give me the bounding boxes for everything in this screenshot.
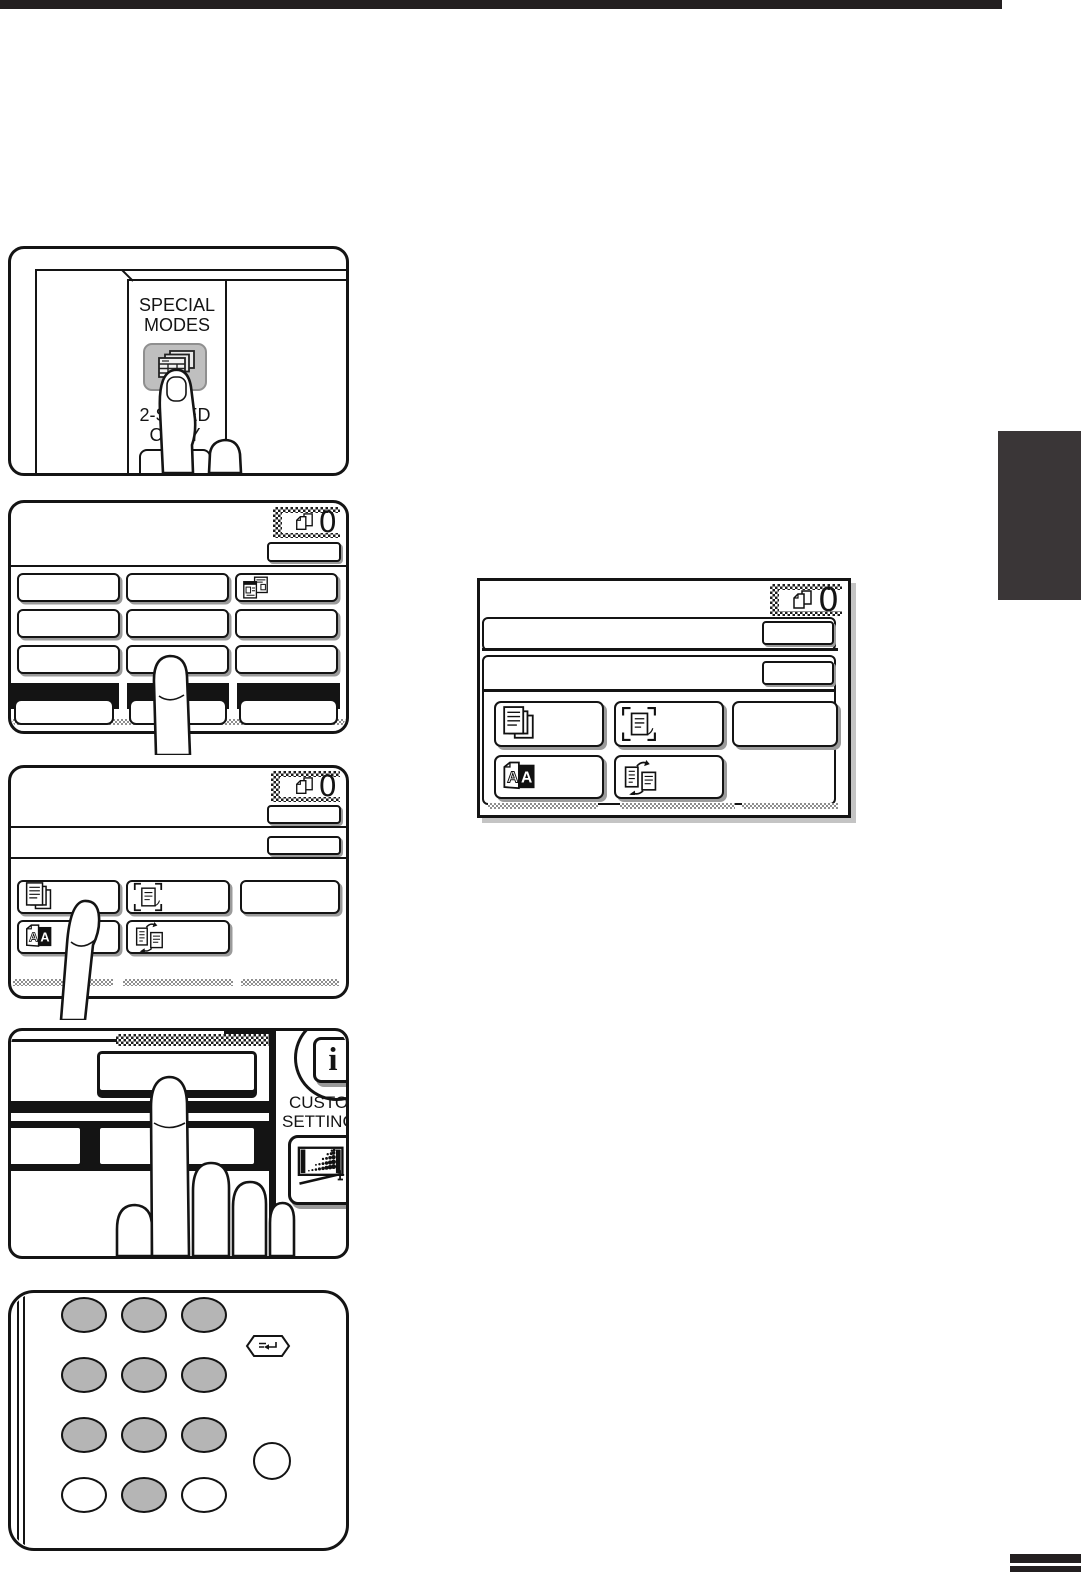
id-card-copy-icon — [242, 576, 269, 600]
step1-special-modes-key-panel: SPECIAL MODES 2-SIDED COPY — [8, 246, 349, 476]
copies-count-icon — [294, 777, 314, 797]
dual-page-copy-button[interactable]: A A — [17, 920, 120, 954]
screen-edge-line — [269, 1031, 276, 1256]
svg-text:A: A — [29, 930, 38, 945]
screen-key[interactable] — [97, 1125, 257, 1167]
numeric-key-0[interactable] — [121, 1477, 167, 1513]
page-footer-bar — [1010, 1554, 1081, 1563]
numeric-key-6[interactable] — [181, 1357, 227, 1393]
mode-button[interactable] — [17, 645, 120, 674]
custom-settings-label: CUSTOM — [289, 1094, 346, 1113]
chapter-edge-tab — [998, 431, 1081, 600]
mode-button[interactable] — [235, 645, 338, 674]
screen-divider — [484, 689, 836, 692]
bezel-hatch — [116, 1034, 274, 1046]
numeric-key-2[interactable] — [121, 1297, 167, 1333]
two-sided-copy-key[interactable] — [139, 449, 211, 473]
screen-bottom-hatch — [241, 979, 339, 986]
information-key[interactable]: i — [313, 1037, 346, 1083]
step4-zoomed-panel: i CUSTOM SETTINGS — [8, 1028, 349, 1259]
dual-page-copy-icon: A A — [24, 923, 55, 951]
copies-display: 0 — [271, 771, 340, 802]
custom-settings-key[interactable] — [288, 1135, 346, 1205]
screen-divider — [11, 826, 346, 828]
numeric-key-8[interactable] — [121, 1417, 167, 1453]
erase-icon — [133, 882, 163, 912]
numeric-key-5[interactable] — [121, 1357, 167, 1393]
mode-button[interactable] — [17, 573, 120, 602]
screen-divider — [482, 648, 838, 651]
bezel-line — [35, 269, 37, 473]
copies-count: 0 — [319, 772, 337, 801]
page-top-rule — [0, 0, 1002, 9]
mode-button[interactable] — [126, 609, 229, 638]
copies-count: 0 — [319, 508, 337, 537]
special-modes-key-icon — [154, 350, 196, 384]
step2-touchscreen-panel: 0 — [8, 500, 349, 734]
mode-button[interactable] — [126, 573, 229, 602]
margin-shift-button[interactable] — [494, 701, 604, 747]
special-modes-screen-large: 0 A A — [477, 578, 851, 818]
screen-key[interactable] — [11, 1125, 83, 1167]
dual-page-copy-icon: A A — [501, 760, 539, 794]
ok-button[interactable] — [762, 621, 834, 645]
step3-special-modes-screen-panel: 0 A A — [8, 765, 349, 999]
erase-button[interactable] — [126, 880, 230, 914]
mode-button[interactable] — [17, 609, 120, 638]
function-key[interactable] — [129, 699, 227, 725]
screen-bottom-hatch — [123, 979, 233, 986]
mode-button[interactable] — [732, 701, 838, 747]
numeric-key-7[interactable] — [61, 1417, 107, 1453]
numeric-key-3[interactable] — [181, 1297, 227, 1333]
two-sided-copy-button[interactable] — [126, 920, 230, 954]
svg-text:A: A — [40, 930, 49, 945]
function-key[interactable] — [239, 699, 338, 725]
special-modes-label: SPECIAL MODES — [129, 295, 225, 335]
function-key[interactable] — [14, 699, 114, 725]
keypad-key-asterisk[interactable] — [61, 1477, 107, 1513]
margin-shift-button[interactable] — [17, 880, 120, 914]
mode-button[interactable] — [235, 609, 338, 638]
margin-shift-icon — [501, 706, 537, 742]
ok-button[interactable] — [267, 805, 341, 824]
special-modes-key[interactable] — [143, 343, 207, 391]
erase-button[interactable] — [614, 701, 724, 747]
manual-page: { "page_chrome": { "top_bar_color": "#23… — [0, 0, 1081, 1572]
two-sided-copy-icon — [133, 922, 165, 952]
numeric-key-4[interactable] — [61, 1357, 107, 1393]
exit-button[interactable] — [762, 661, 834, 685]
clear-key[interactable] — [253, 1442, 291, 1480]
two-sided-copy-button[interactable] — [614, 755, 724, 799]
mode-button[interactable] — [240, 880, 340, 914]
screen-bottom-hatch — [742, 803, 838, 809]
display-contrast-icon — [297, 1146, 346, 1186]
screen-bottom-hatch — [488, 803, 598, 809]
step5-keypad-panel — [8, 1290, 349, 1551]
screen-bottom-hatch — [620, 803, 735, 809]
copies-count-icon — [294, 513, 314, 533]
screen-divider — [11, 857, 346, 859]
screen-button[interactable] — [267, 542, 341, 562]
panel-edge-line — [23, 1293, 25, 1548]
margin-shift-icon — [24, 882, 54, 912]
erase-icon — [621, 706, 657, 742]
copies-count-icon — [791, 590, 813, 612]
copies-display: 0 — [273, 507, 340, 538]
bezel-line — [11, 1039, 117, 1042]
custom-settings-label: SETTINGS — [282, 1113, 346, 1132]
panel-edge-line — [17, 1293, 19, 1548]
svg-text:A: A — [521, 770, 532, 787]
bezel-line — [127, 279, 346, 281]
numeric-key-1[interactable] — [61, 1297, 107, 1333]
numeric-key-9[interactable] — [181, 1417, 227, 1453]
keypad-key-pound[interactable] — [181, 1477, 227, 1513]
screen-bottom-hatch — [13, 979, 113, 986]
exit-button[interactable] — [267, 836, 341, 855]
bezel-line — [35, 269, 346, 271]
copies-display: 0 — [770, 584, 842, 616]
screen-key[interactable] — [97, 1051, 257, 1093]
two-sided-copy-key-label: 2-SIDED COPY — [123, 405, 227, 445]
copies-count: 0 — [818, 583, 839, 616]
information-icon: i — [328, 1044, 337, 1077]
svg-text:A: A — [507, 770, 518, 787]
two-sided-copy-icon — [621, 760, 659, 795]
program-key[interactable] — [245, 1334, 291, 1358]
screen-divider — [11, 565, 346, 567]
mode-button[interactable] — [126, 645, 229, 674]
dual-page-copy-button[interactable]: A A — [494, 755, 604, 799]
screen-row-bar — [11, 1101, 269, 1113]
page-footer-bar — [1010, 1566, 1081, 1572]
mode-button-card-shot[interactable] — [235, 573, 338, 602]
